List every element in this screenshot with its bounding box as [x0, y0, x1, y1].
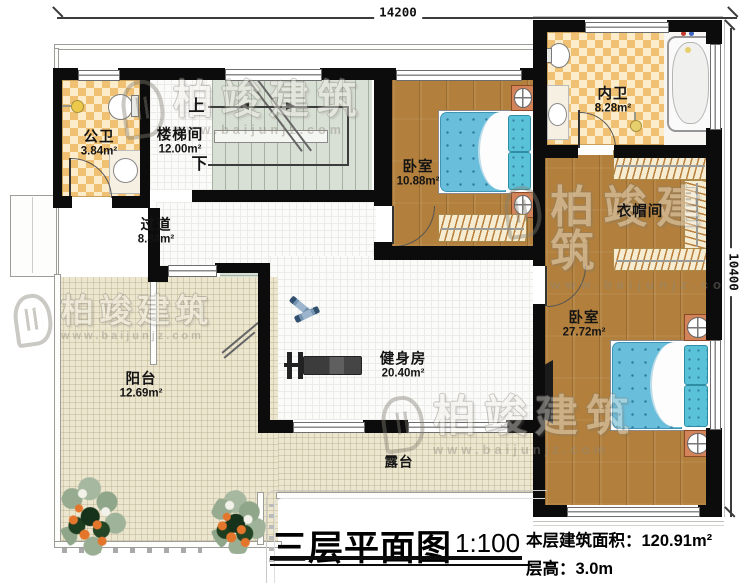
equipment-platform: [10, 195, 57, 277]
direction-line-up: [208, 106, 348, 108]
window: [585, 22, 669, 33]
pillow: [684, 385, 708, 427]
lamp-icon: [514, 195, 532, 215]
wall-segment: [614, 145, 720, 158]
pillow: [684, 345, 708, 385]
pillow: [508, 152, 531, 190]
dimension-top-value: 14200: [374, 5, 422, 20]
room-label-public-bath: 公卫 3.84m²: [81, 129, 117, 158]
room-name: 露台: [385, 454, 414, 469]
floor-drain: [630, 120, 642, 132]
workout-bench: [303, 356, 362, 375]
room-area: 10.88m²: [397, 176, 440, 189]
floor-height-value: 3.0m: [576, 560, 614, 578]
sink-basin: [113, 158, 138, 183]
floor-height-info: 层高：3.0m: [526, 555, 613, 579]
wardrobe-rack: [438, 214, 527, 242]
wall-segment: [533, 145, 578, 158]
room-label-closet: 衣帽间: [617, 204, 664, 220]
room-area: 3.84m²: [81, 146, 117, 159]
label-text: 下: [191, 156, 208, 174]
wall-segment: [258, 420, 293, 433]
room-label-terrace: 露台: [385, 454, 414, 469]
room-label-stairwell: 楼梯间 12.00m²: [157, 127, 204, 156]
wall-segment: [53, 68, 62, 208]
direction-line-down: [208, 164, 348, 166]
room-name: 内卫: [595, 86, 631, 102]
dimension-right-value: 10400: [727, 248, 742, 296]
shower-head: [71, 100, 84, 113]
wall-segment: [698, 505, 720, 517]
room-name: 卧室: [397, 159, 440, 175]
room-name: 阳台: [120, 371, 163, 387]
room-name: 健身房: [380, 351, 427, 367]
window: [408, 422, 508, 433]
room-name: 衣帽间: [617, 204, 664, 220]
wall-segment: [706, 428, 722, 517]
parapet-top: [54, 44, 540, 50]
wall-segment: [706, 128, 722, 340]
floor-area-label: 本层建筑面积：: [526, 532, 642, 550]
lamp-icon: [514, 88, 532, 108]
label-text: 上: [188, 98, 205, 116]
room-label-balcony: 阳台 12.69m²: [120, 371, 163, 400]
toilet: [108, 94, 133, 120]
tv-panel: [545, 360, 553, 424]
room-area: 8.28m²: [595, 103, 631, 116]
room-name: 楼梯间: [157, 127, 204, 143]
wall-segment: [506, 420, 535, 433]
room-area: 12.00m²: [157, 144, 204, 157]
dimension-tick: [728, 6, 739, 17]
window: [168, 265, 217, 277]
wall-segment: [374, 246, 545, 260]
outer-line-right: [724, 20, 725, 517]
potted-plant: [58, 474, 128, 556]
wall-segment: [533, 304, 545, 517]
dimension-tick: [53, 6, 64, 17]
window: [710, 44, 721, 130]
wall-segment: [53, 196, 72, 208]
room-label-hallway: 过道 8.84m²: [138, 217, 174, 246]
potted-plant: [210, 490, 266, 554]
direction-line-vert: [347, 106, 349, 166]
nightstand: [511, 85, 535, 111]
wall-segment: [533, 148, 545, 266]
window: [293, 422, 365, 433]
wall-segment: [118, 68, 225, 80]
room-label-bedroom2: 卧室 27.72m²: [563, 310, 606, 339]
room-label-master-bath: 内卫 8.28m²: [595, 86, 631, 115]
brand-logo-icon: [11, 292, 56, 349]
wall-segment: [192, 190, 374, 202]
wall-segment: [706, 20, 722, 44]
room-label-gym: 健身房 20.40m²: [380, 351, 427, 380]
floorplan-canvas: 柏竣建筑 www.baijunjz.com 柏竣建筑 www.baijunjz.…: [0, 0, 750, 585]
wall-segment: [112, 196, 150, 208]
plan-scale: 1:100: [455, 528, 520, 559]
wall-segment: [533, 20, 547, 148]
room-area: 12.69m²: [120, 388, 163, 401]
toilet-tank: [131, 95, 139, 117]
floor-area-info: 本层建筑面积：120.91m²: [526, 527, 712, 551]
stair-up-label: 上: [188, 98, 205, 116]
room-label-bedroom1: 卧室 10.88m²: [397, 159, 440, 188]
bathtub-basin: [672, 42, 709, 124]
floor-area-value: 120.91m²: [642, 532, 713, 550]
window: [567, 507, 700, 517]
direction-arrow-left: [240, 102, 249, 110]
outer-line-bottom2: [533, 525, 724, 526]
room-name: 公卫: [81, 129, 117, 145]
pillow: [508, 115, 531, 152]
window: [710, 340, 721, 430]
floor-gym: [270, 256, 533, 420]
title-underline: [270, 556, 522, 560]
wall-segment: [148, 266, 168, 282]
floor-height-label: 层高：: [526, 560, 576, 578]
window: [396, 70, 522, 81]
room-name: 过道: [138, 217, 174, 233]
closet-rack: [613, 248, 708, 271]
window: [225, 69, 322, 81]
room-area: 20.40m²: [380, 368, 427, 381]
room-area: 27.72m²: [563, 327, 606, 340]
tub-drain: [685, 47, 691, 53]
direction-arrow-right: [286, 102, 295, 110]
wall-segment: [374, 68, 392, 206]
stair-handrail: [214, 130, 328, 143]
wall-segment: [258, 272, 270, 424]
platform-line: [32, 197, 33, 273]
wall-segment: [140, 80, 150, 208]
room-name: 卧室: [563, 310, 606, 326]
stair-down-label: 下: [191, 156, 208, 174]
closet-rack: [684, 180, 708, 250]
wall-segment: [363, 420, 408, 433]
railing-strip: [150, 273, 157, 365]
window: [78, 70, 120, 81]
title-underline-thin: [270, 564, 532, 566]
room-area: 8.84m²: [138, 234, 174, 247]
sink-basin: [548, 103, 567, 126]
outer-line-bottom1: [533, 521, 724, 522]
wall-segment: [533, 20, 585, 32]
